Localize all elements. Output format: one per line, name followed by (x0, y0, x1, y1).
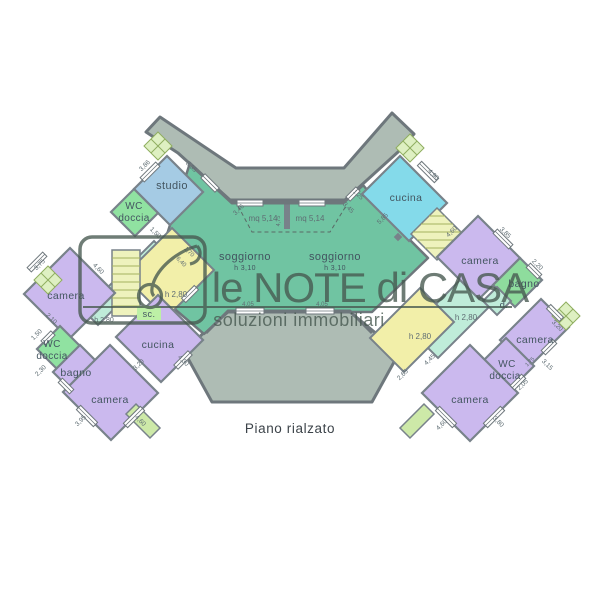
dim-label: 2,65 (396, 368, 410, 382)
dim-label: 3,15 (540, 358, 554, 372)
floorplan-drawing: studio WC doccia camera WC doccia bagno … (0, 0, 600, 600)
label-wc-topleft: WC (125, 201, 142, 212)
floor-caption: Piano rialzato (245, 421, 335, 436)
label-sc: sc. (143, 309, 156, 319)
dim-label: mq 5,14 (249, 214, 278, 223)
watermark-title: le NOTE di CASA (212, 264, 529, 311)
dim-label: 4,75 (276, 216, 282, 227)
watermark-subtitle: soluzioni immobiliari (213, 310, 385, 330)
label-soggiorno-right: soggiorno (309, 251, 361, 263)
label-doccia-topleft: doccia (118, 213, 149, 224)
label-bagno-left: bagno (60, 367, 91, 379)
dim-label: h 2,80 (455, 313, 478, 322)
label-doccia-right: doccia (489, 371, 520, 382)
dim-label: mq 5,14 (296, 214, 325, 223)
dim-label: h 2,80 (165, 290, 188, 299)
label-cucina-right: cucina (390, 192, 423, 204)
wall-center-divider (284, 202, 290, 229)
label-studio: studio (156, 180, 188, 192)
dim-label: h 2,80 (409, 332, 432, 341)
floorplan-page: studio WC doccia camera WC doccia bagno … (0, 0, 600, 600)
label-wc-right: WC (498, 359, 515, 370)
label-camera-right-mid: camera (516, 334, 553, 346)
label-doccia-bottomleft: doccia (36, 351, 67, 362)
dim-label: 2,30 (34, 364, 48, 378)
label-camera-right-bottom: camera (451, 394, 488, 406)
label-wc-bottomleft: WC (43, 339, 60, 350)
label-soggiorno-left: soggiorno (219, 251, 271, 263)
balcony-strip-right (400, 404, 434, 438)
label-camera-bottomleft: camera (91, 394, 128, 406)
label-cucina-left: cucina (142, 339, 175, 351)
